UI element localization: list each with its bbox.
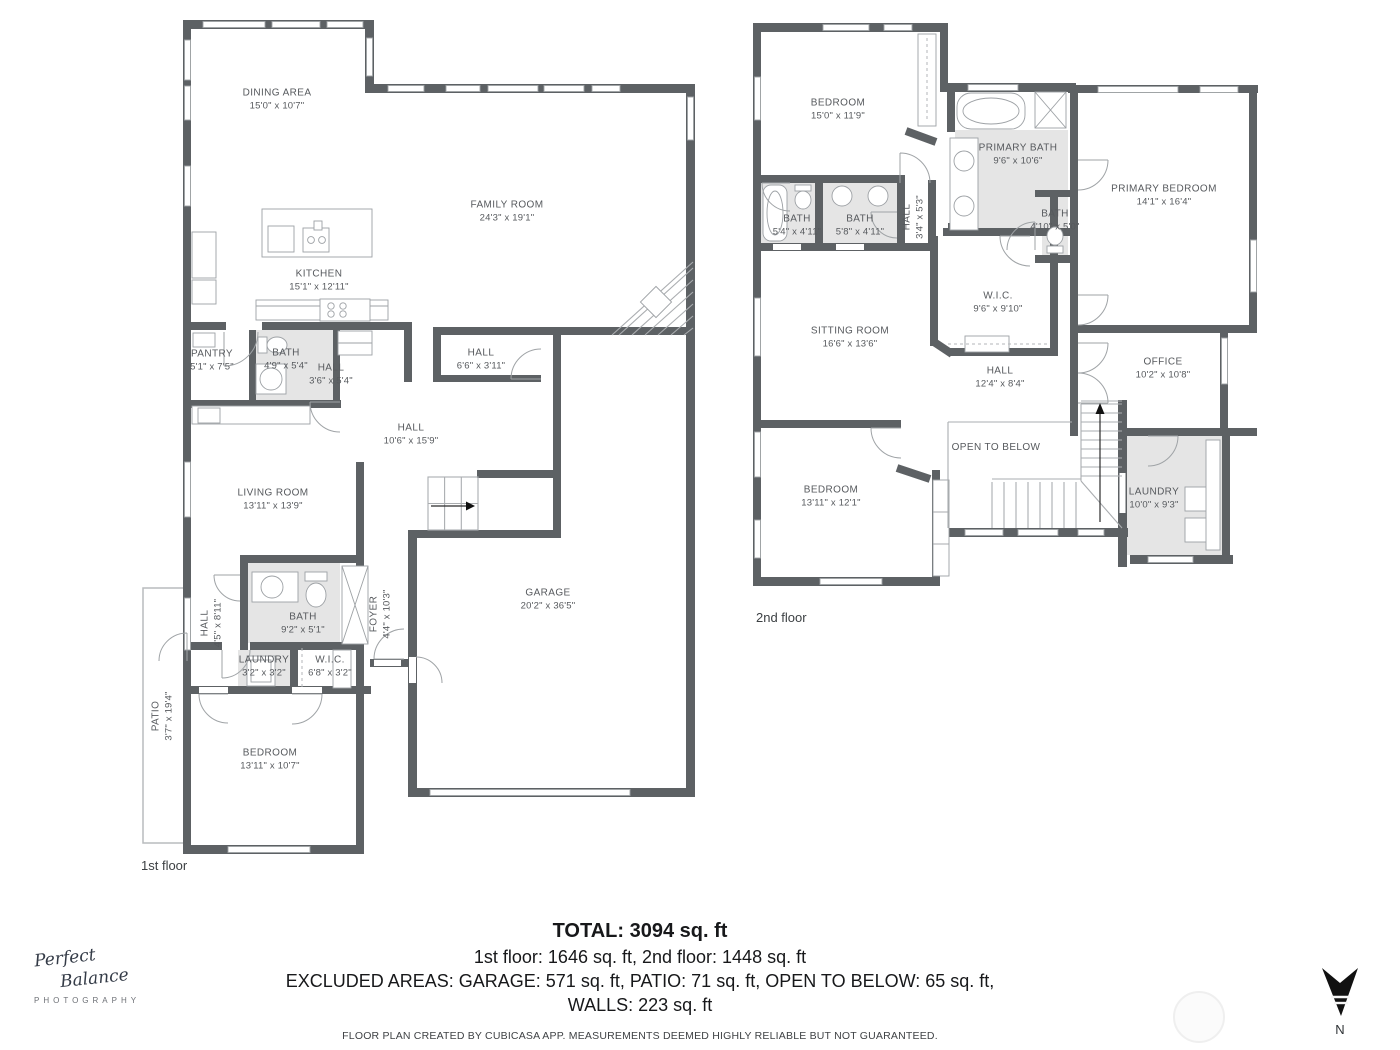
room-label-sitting-room: SITTING ROOM16'6" x 13'6"	[811, 326, 889, 351]
summary-walls: WALLS: 223 sq. ft	[0, 995, 1280, 1016]
room-label-hall-lower: HALL4'5" x 8'11"	[200, 599, 225, 648]
floorplan-page: DINING AREA15'0" x 10'7" FAMILY ROOM24'3…	[0, 0, 1400, 1050]
area-summary: TOTAL: 3094 sq. ft 1st floor: 1646 sq. f…	[0, 920, 1280, 1042]
floor2-stairs	[948, 401, 1122, 528]
room-label-office: OFFICE10'2" x 10'8"	[1136, 357, 1191, 382]
room-label-foyer: FOYER4'4" x 10'3"	[369, 589, 394, 638]
room-label-bath-2: BATH9'2" x 5'1"	[281, 612, 325, 637]
room-label-bath-1: BATH4'9" x 5'4"	[264, 348, 308, 373]
room-label-bath-a: BATH5'4" x 4'11"	[773, 214, 822, 239]
room-label-primary-bath: PRIMARY BATH9'6" x 10'6"	[979, 143, 1058, 168]
room-label-patio: PATIO3'7" x 19'4"	[151, 691, 176, 740]
room-label-pantry: PANTRY5'1" x 7'5"	[190, 349, 234, 374]
room-label-primary-bedroom: PRIMARY BEDROOM14'1" x 16'4"	[1111, 184, 1217, 209]
room-label-hall-small-2: HALL3'4" x 5'3"	[902, 195, 927, 239]
room-label-bedroom-1: BEDROOM13'11" x 10'7"	[240, 748, 299, 773]
room-label-bedroom-bl: BEDROOM13'11" x 12'1"	[801, 485, 860, 510]
floor1-walls	[183, 20, 695, 854]
room-label-kitchen: KITCHEN15'1" x 12'11"	[289, 269, 348, 294]
summary-excluded: EXCLUDED AREAS: GARAGE: 571 sq. ft, PATI…	[0, 971, 1280, 992]
room-label-living-room: LIVING ROOM13'11" x 13'9"	[237, 488, 308, 513]
photographer-logo: Perfect Balance PHOTOGRAPHY	[34, 946, 140, 1005]
room-label-bath-b: BATH5'8" x 4'11"	[836, 214, 885, 239]
room-label-bath-c: BATH4'10" x 5'0"	[1030, 209, 1079, 234]
room-label-dining-area: DINING AREA15'0" x 10'7"	[243, 88, 312, 113]
room-label-hall-2: HALL12'4" x 8'4"	[975, 366, 1024, 391]
room-label-family-room: FAMILY ROOM24'3" x 19'1"	[471, 200, 544, 225]
summary-floors: 1st floor: 1646 sq. ft, 2nd floor: 1448 …	[0, 947, 1280, 968]
room-label-bedroom-tl: BEDROOM15'0" x 11'9"	[811, 98, 865, 123]
room-label-hall-main: HALL10'6" x 15'9"	[384, 423, 439, 448]
room-label-hall-small: HALL3'6" x 5'4"	[309, 363, 353, 388]
room-label-laundry-1: LAUNDRY3'2" x 3'2"	[239, 655, 289, 680]
summary-total: TOTAL: 3094 sq. ft	[0, 920, 1280, 943]
summary-disclaimer: FLOOR PLAN CREATED BY CUBICASA APP. MEAS…	[0, 1030, 1280, 1042]
room-label-wic-2: W.I.C.9'6" x 9'10"	[973, 291, 1022, 316]
north-label: N	[1335, 1022, 1344, 1037]
floorplan-canvas	[0, 0, 1400, 1050]
room-label-wic-1: W.I.C.6'8" x 3'2"	[308, 655, 352, 680]
watermark-circle	[1173, 991, 1225, 1043]
north-arrow-icon	[1322, 968, 1358, 1016]
floor1-windows	[185, 22, 694, 853]
room-label-open-to-below: OPEN TO BELOW	[952, 442, 1041, 455]
floor2-caption: 2nd floor	[756, 610, 807, 625]
room-label-garage: GARAGE20'2" x 36'5"	[521, 588, 576, 613]
floor1-caption: 1st floor	[141, 858, 187, 873]
room-label-laundry-2: LAUNDRY10'0" x 9'3"	[1129, 487, 1179, 512]
room-label-hall-upper: HALL6'6" x 3'11"	[457, 348, 506, 373]
